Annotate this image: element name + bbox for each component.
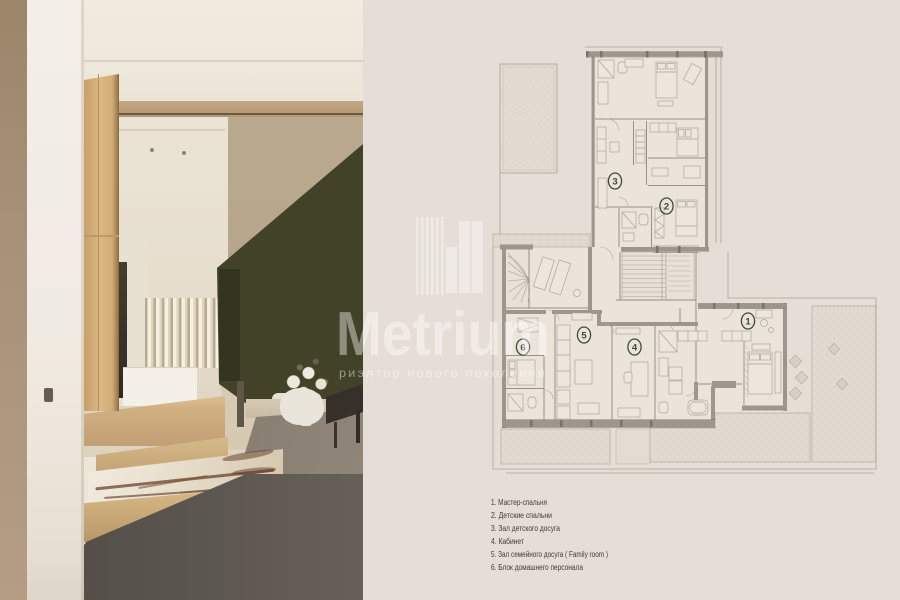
svg-text:1: 1: [745, 317, 751, 328]
svg-text:2: 2: [664, 202, 669, 213]
svg-text:Metrium: Metrium: [336, 300, 550, 369]
svg-text:риэлтор нового поколения: риэлтор нового поколения: [339, 368, 547, 380]
svg-text:4: 4: [632, 343, 638, 354]
svg-text:3: 3: [612, 177, 617, 188]
svg-text:3. Зал детского досуга: 3. Зал детского досуга: [491, 524, 560, 533]
svg-text:5: 5: [581, 331, 587, 342]
svg-text:1. Мастер-спальня: 1. Мастер-спальня: [491, 498, 547, 507]
svg-text:6. Блок домашнего персонала: 6. Блок домашнего персонала: [491, 563, 583, 572]
svg-text:4. Кабинет: 4. Кабинет: [491, 537, 524, 546]
svg-text:5. Зал семейного досуга ( Fami: 5. Зал семейного досуга ( Family room ): [491, 550, 608, 559]
svg-text:2. Детские спальни: 2. Детские спальни: [491, 511, 552, 520]
